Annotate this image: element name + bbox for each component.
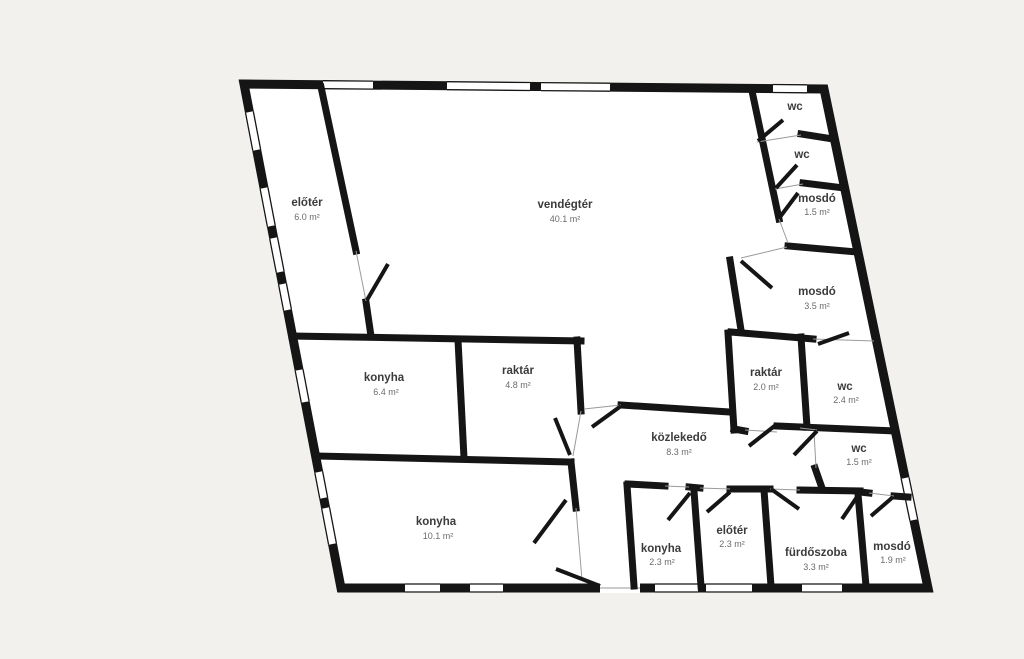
svg-text:konyha: konyha bbox=[364, 372, 405, 384]
svg-text:mosdó: mosdó bbox=[873, 541, 911, 553]
svg-text:1.5 m²: 1.5 m² bbox=[804, 207, 830, 217]
svg-text:2.3 m²: 2.3 m² bbox=[719, 539, 745, 549]
svg-text:wc: wc bbox=[786, 101, 803, 113]
svg-text:3.3 m²: 3.3 m² bbox=[803, 562, 829, 572]
svg-text:6.4 m²: 6.4 m² bbox=[373, 387, 399, 397]
svg-text:1.5 m²: 1.5 m² bbox=[846, 457, 872, 467]
svg-text:mosdó: mosdó bbox=[798, 193, 836, 205]
svg-text:konyha: konyha bbox=[641, 543, 682, 555]
svg-text:wc: wc bbox=[793, 149, 810, 161]
room-label-wc-top-2: wc bbox=[793, 149, 810, 161]
floor-plan-page: előtér 6.0 m² vendégtér 40.1 m² wc wc mo… bbox=[0, 0, 1024, 659]
svg-text:konyha: konyha bbox=[416, 516, 457, 528]
svg-text:közlekedő: közlekedő bbox=[651, 432, 707, 444]
svg-text:fürdőszoba: fürdőszoba bbox=[785, 547, 848, 559]
svg-text:2.3 m²: 2.3 m² bbox=[649, 557, 675, 567]
svg-text:wc: wc bbox=[836, 381, 853, 393]
svg-text:raktár: raktár bbox=[750, 367, 782, 379]
svg-text:2.4 m²: 2.4 m² bbox=[833, 395, 859, 405]
svg-text:előtér: előtér bbox=[716, 525, 748, 537]
svg-text:3.5 m²: 3.5 m² bbox=[804, 301, 830, 311]
svg-text:6.0 m²: 6.0 m² bbox=[294, 212, 320, 222]
svg-text:vendégtér: vendégtér bbox=[538, 199, 593, 211]
svg-text:40.1 m²: 40.1 m² bbox=[550, 214, 581, 224]
svg-text:előtér: előtér bbox=[291, 197, 323, 209]
svg-text:1.9 m²: 1.9 m² bbox=[880, 555, 906, 565]
svg-text:mosdó: mosdó bbox=[798, 286, 836, 298]
svg-text:4.8 m²: 4.8 m² bbox=[505, 380, 531, 390]
svg-text:raktár: raktár bbox=[502, 365, 534, 377]
svg-text:wc: wc bbox=[850, 443, 867, 455]
floor-plan-drawing: előtér 6.0 m² vendégtér 40.1 m² wc wc mo… bbox=[0, 0, 1024, 659]
svg-text:2.0 m²: 2.0 m² bbox=[753, 382, 779, 392]
room-label-wc-top-1: wc bbox=[786, 101, 803, 113]
svg-text:8.3 m²: 8.3 m² bbox=[666, 447, 692, 457]
svg-text:10.1 m²: 10.1 m² bbox=[423, 531, 454, 541]
